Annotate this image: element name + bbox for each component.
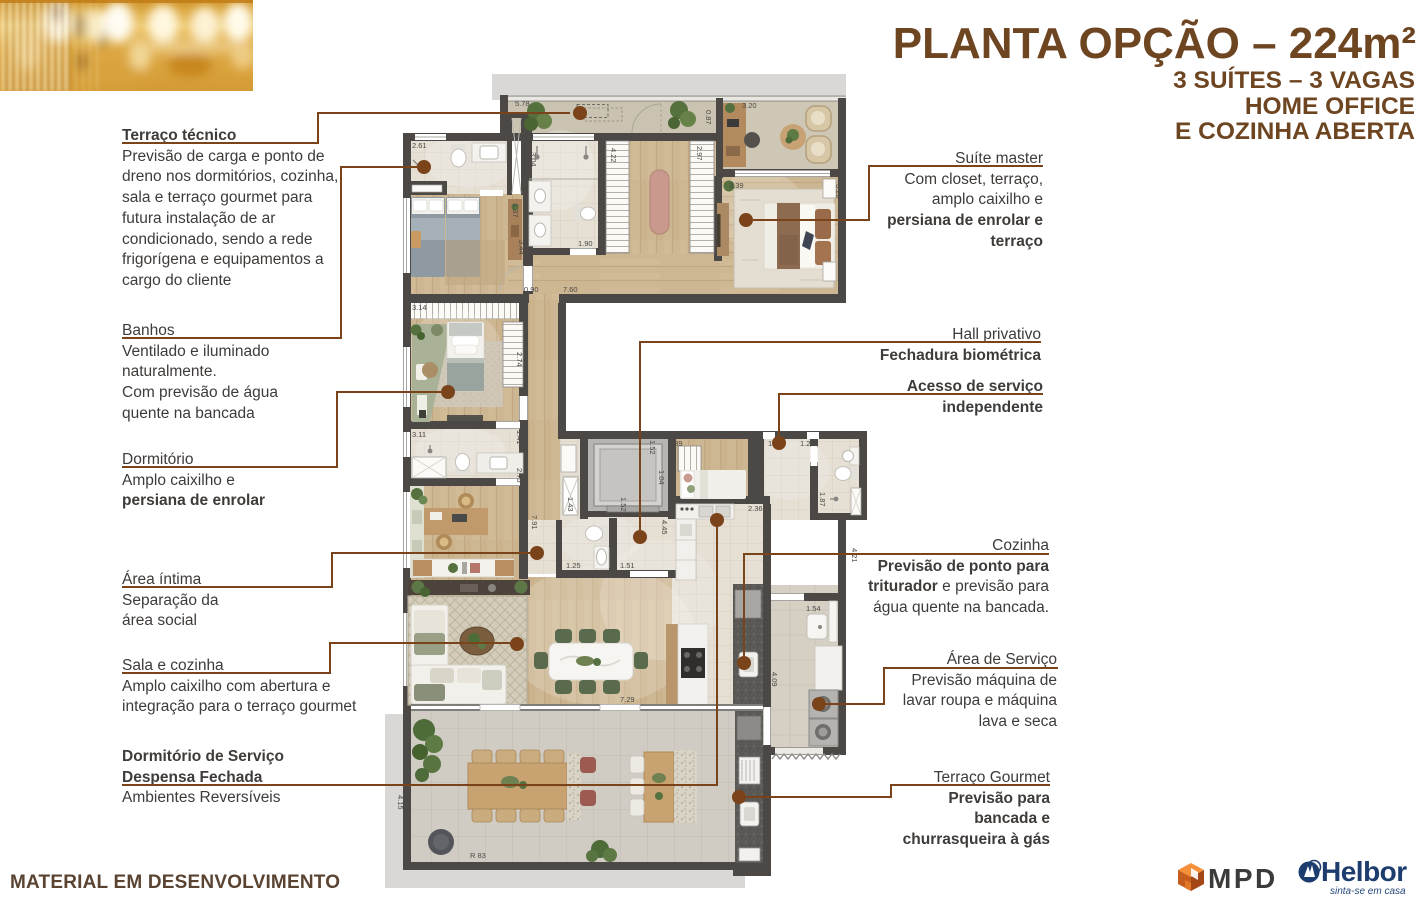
svg-text:4.09: 4.09 [770,672,779,687]
svg-text:2.61: 2.61 [412,141,427,150]
svg-text:1.25: 1.25 [566,561,581,570]
svg-text:1.37: 1.37 [511,203,520,218]
svg-text:1.41: 1.41 [515,430,524,445]
svg-text:4.15: 4.15 [396,795,405,810]
svg-text:1.90: 1.90 [578,239,593,248]
svg-text:1.04: 1.04 [657,470,666,485]
svg-text:1.87: 1.87 [818,492,827,507]
svg-text:2.97: 2.97 [695,146,704,161]
svg-text:3.14: 3.14 [412,303,427,312]
svg-text:2.74: 2.74 [515,352,524,367]
svg-text:3.11: 3.11 [412,430,426,439]
svg-text:2.39: 2.39 [668,439,683,448]
svg-text:3.20: 3.20 [834,184,843,199]
svg-text:1.51: 1.51 [620,561,635,570]
svg-text:3.04: 3.04 [529,152,538,167]
svg-text:4.45: 4.45 [660,520,669,535]
svg-text:5.78: 5.78 [515,99,530,108]
svg-text:0.90: 0.90 [524,285,539,294]
svg-text:7.60: 7.60 [563,285,578,294]
svg-text:2.75: 2.75 [515,468,524,483]
svg-text:7.91: 7.91 [530,515,539,530]
svg-text:3.44: 3.44 [517,240,526,255]
svg-text:4.21: 4.21 [850,548,859,563]
svg-text:1.25: 1.25 [800,439,815,448]
svg-text:1.54: 1.54 [806,604,821,613]
svg-text:1.43: 1.43 [566,497,575,512]
svg-text:4.22: 4.22 [609,148,618,163]
svg-text:3.20: 3.20 [742,101,757,110]
svg-text:R 83: R 83 [470,851,486,860]
svg-text:2.36: 2.36 [748,504,763,513]
svg-text:1.52: 1.52 [619,497,628,512]
svg-text:0.87: 0.87 [704,110,713,125]
svg-text:7.29: 7.29 [620,695,635,704]
svg-text:3.39: 3.39 [729,181,744,190]
svg-text:1.52: 1.52 [648,440,657,455]
